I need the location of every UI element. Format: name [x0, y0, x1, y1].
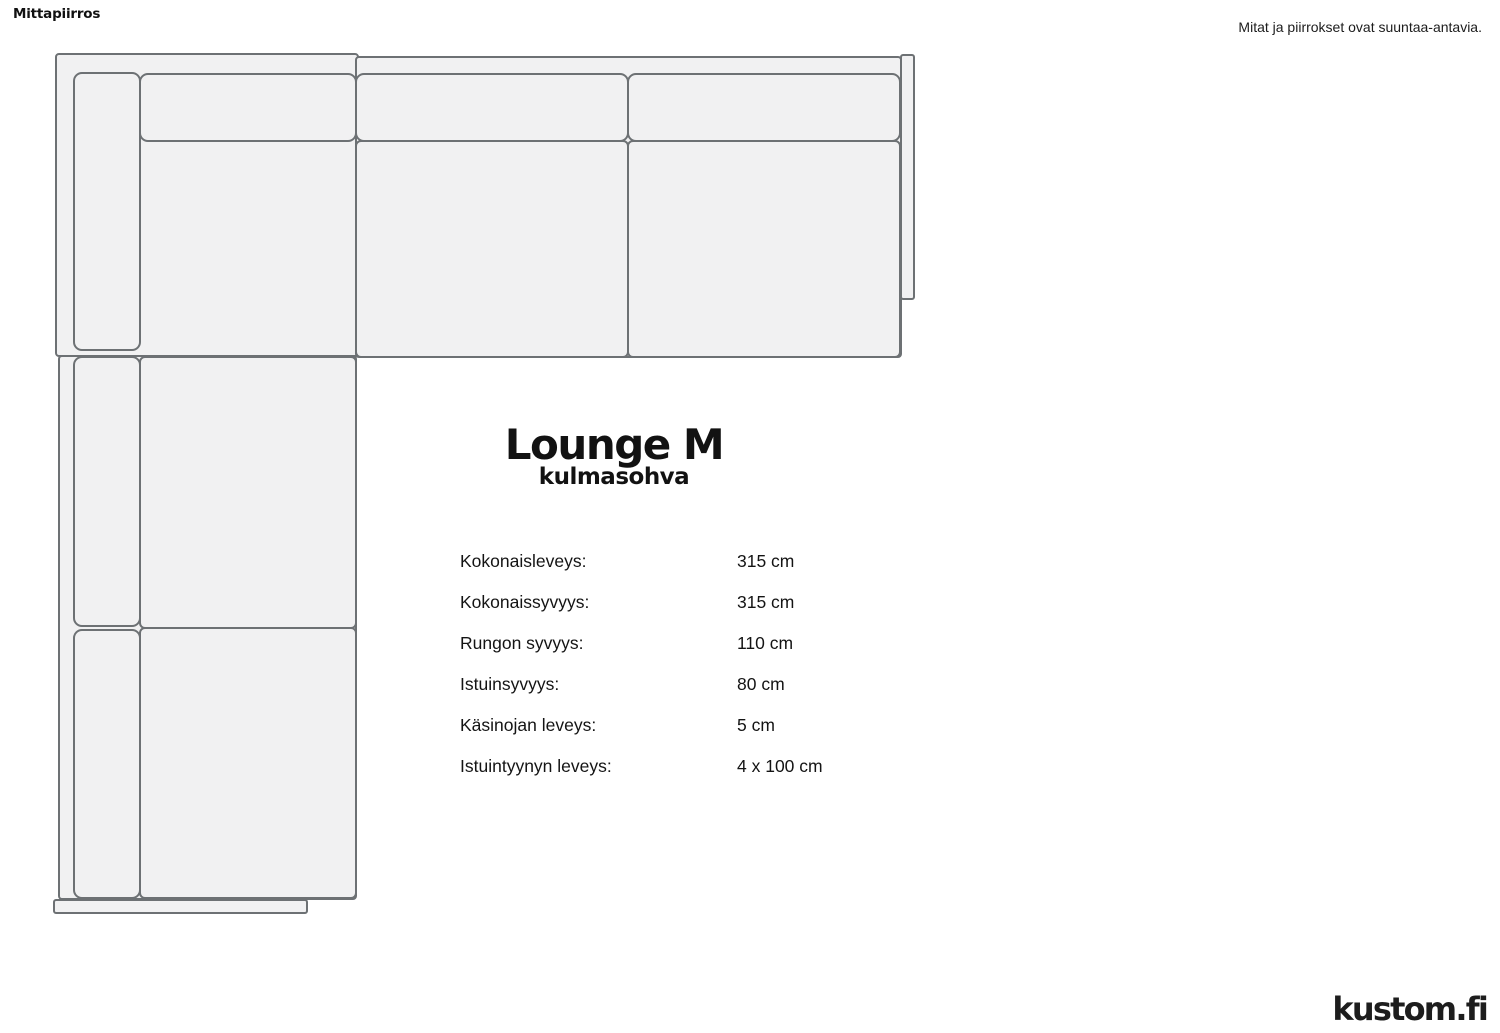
- spec-value: 110 cm: [737, 623, 793, 664]
- spec-label: Rungon syvyys:: [460, 623, 737, 664]
- spec-list: Kokonaisleveys: 315 cm Kokonaissyvyys: 3…: [460, 541, 823, 787]
- spec-row: Käsinojan leveys: 5 cm: [460, 705, 823, 746]
- spec-label: Istuintyynyn leveys:: [460, 746, 737, 787]
- product-type: kulmasohva: [414, 466, 814, 489]
- spec-row: Rungon syvyys: 110 cm: [460, 623, 823, 664]
- spec-label: Kokonaissyvyys:: [460, 582, 737, 623]
- product-name: Lounge M: [414, 423, 814, 467]
- spec-value: 315 cm: [737, 582, 794, 623]
- back-cushion-corner-top: [140, 74, 356, 141]
- seat-cushion-left-bottom: [140, 628, 356, 898]
- kustom-logo: kustom.fi: [1332, 990, 1487, 1028]
- back-cushion-left-bottom: [74, 630, 140, 898]
- sofa-top-view-drawing: [0, 0, 1500, 1033]
- spec-value: 315 cm: [737, 541, 794, 582]
- back-cushion-top-right: [628, 74, 900, 141]
- right-armrest: [901, 55, 914, 299]
- spec-label: Istuinsyvyys:: [460, 664, 737, 705]
- spec-row: Istuintyynyn leveys: 4 x 100 cm: [460, 746, 823, 787]
- back-cushion-corner-column: [74, 73, 140, 350]
- seat-cushion-top-right: [628, 141, 900, 357]
- bottom-armrest: [54, 900, 307, 913]
- spec-label: Käsinojan leveys:: [460, 705, 737, 746]
- spec-value: 4 x 100 cm: [737, 746, 823, 787]
- seat-cushion-top-mid: [356, 141, 628, 357]
- back-cushion-left-mid: [74, 357, 140, 626]
- spec-value: 80 cm: [737, 664, 785, 705]
- spec-row: Kokonaissyvyys: 315 cm: [460, 582, 823, 623]
- spec-row: Istuinsyvyys: 80 cm: [460, 664, 823, 705]
- spec-row: Kokonaisleveys: 315 cm: [460, 541, 823, 582]
- product-title-block: Lounge M kulmasohva: [414, 423, 814, 489]
- back-cushion-top-mid: [356, 74, 628, 141]
- spec-value: 5 cm: [737, 705, 775, 746]
- seat-cushion-left-mid: [140, 357, 356, 628]
- mittapiirros-page: Mittapiirros Mitat ja piirrokset ovat su…: [0, 0, 1500, 1033]
- spec-label: Kokonaisleveys:: [460, 541, 737, 582]
